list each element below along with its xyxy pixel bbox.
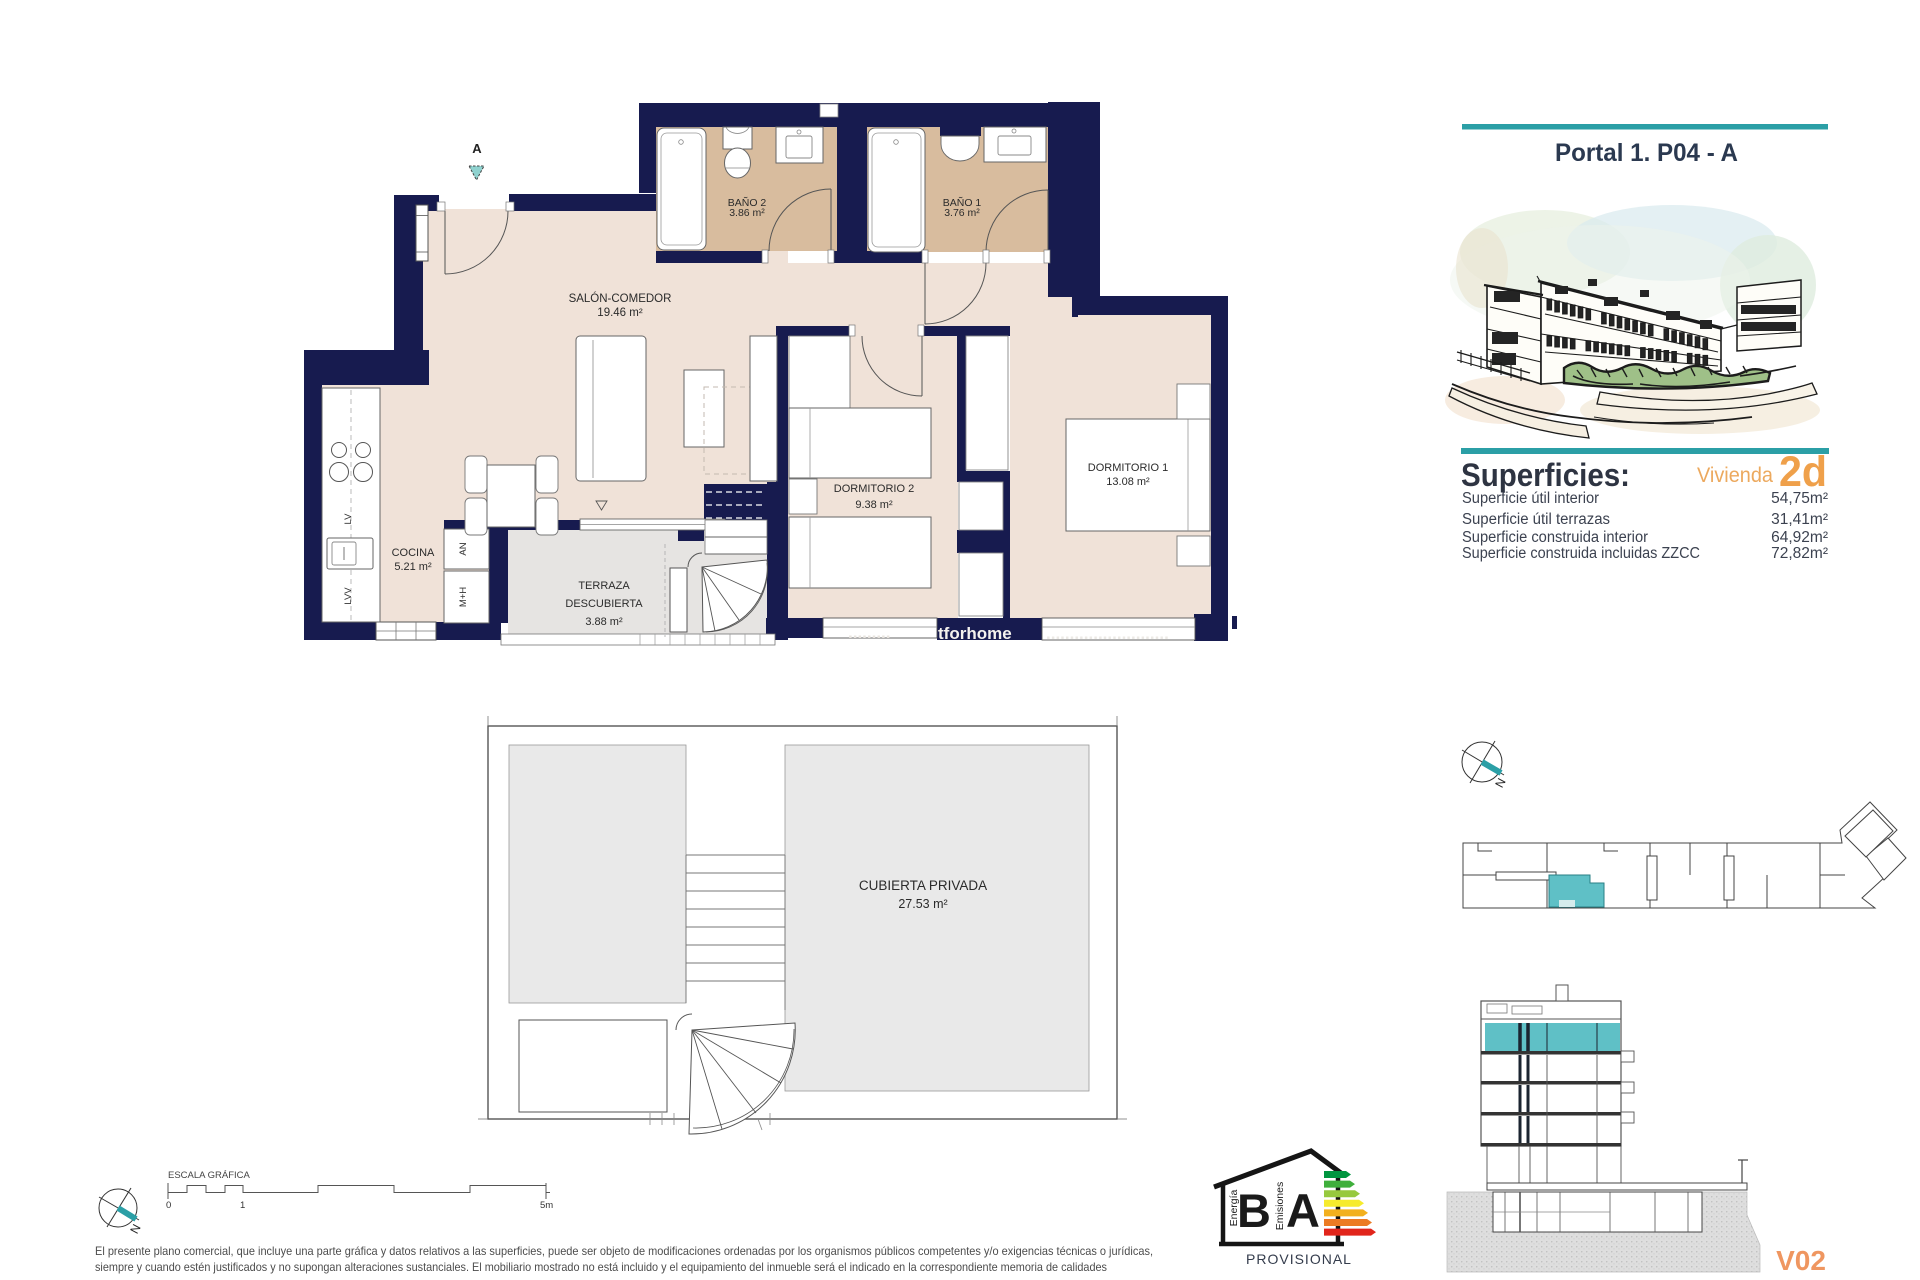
svg-text:31,41m²: 31,41m² [1771,511,1828,528]
svg-text:PROVISIONAL: PROVISIONAL [1246,1251,1352,1267]
svg-text:3.76 m²: 3.76 m² [944,207,980,219]
svg-text:Superficie útil interior: Superficie útil interior [1462,490,1599,507]
svg-text:3.86 m²: 3.86 m² [729,207,765,219]
svg-text:Superficie construida interior: Superficie construida interior [1462,529,1648,546]
svg-text:LV: LV [343,513,354,525]
svg-text:El presente plano comercial, q: El presente plano comercial, que incluye… [95,1245,1153,1258]
svg-text:54,75m²: 54,75m² [1771,490,1828,507]
svg-text:.........: ......... [848,623,891,642]
svg-text:5m: 5m [540,1200,553,1211]
svg-text:SALÓN-COMEDOR: SALÓN-COMEDOR [569,292,672,305]
svg-text:13.08 m²: 13.08 m² [1106,476,1150,488]
svg-text:64,92m²: 64,92m² [1771,529,1828,546]
svg-text:Portal 1. P04 - A: Portal 1. P04 - A [1555,139,1738,167]
svg-text:V02: V02 [1776,1245,1826,1276]
svg-text:1: 1 [240,1200,245,1211]
svg-text:9.38 m²: 9.38 m² [855,499,893,511]
svg-text:B: B [1237,1184,1271,1237]
svg-text:2d: 2d [1779,448,1827,496]
svg-text:LVV: LVV [343,587,354,605]
svg-text:tforhome: tforhome [938,624,1012,643]
svg-text:Vivienda: Vivienda [1697,464,1773,487]
svg-text:M+H: M+H [458,587,469,607]
svg-text:5.21 m²: 5.21 m² [394,561,432,573]
svg-text:27.53 m²: 27.53 m² [898,897,947,911]
svg-text:TERRAZA: TERRAZA [578,580,630,592]
svg-text:DORMITORIO 1: DORMITORIO 1 [1088,462,1168,474]
svg-text:Superficie construida incluida: Superficie construida incluidas ZZCC [1462,545,1700,562]
svg-text:A: A [1286,1184,1320,1237]
svg-text:..........................: .......................... [1046,624,1169,643]
svg-text:Energía: Energía [1228,1189,1240,1226]
svg-text:Emisiones: Emisiones [1274,1182,1286,1230]
svg-text:AN: AN [458,542,469,555]
svg-text:3.88 m²: 3.88 m² [585,616,623,628]
svg-text:Superficie útil terrazas: Superficie útil terrazas [1462,511,1610,528]
svg-text:DESCUBIERTA: DESCUBIERTA [565,598,643,610]
svg-text:DORMITORIO 2: DORMITORIO 2 [834,483,914,495]
svg-text:0: 0 [166,1200,171,1211]
svg-text:Superficies:: Superficies: [1461,457,1630,493]
svg-text:ESCALA GRÁFICA: ESCALA GRÁFICA [168,1170,250,1181]
svg-text:A: A [472,141,482,156]
svg-text:19.46 m²: 19.46 m² [597,307,643,319]
svg-text:COCINA: COCINA [392,547,435,559]
svg-text:siempre y cuando estén justifi: siempre y cuando estén justificados y no… [95,1261,1107,1274]
svg-text:72,82m²: 72,82m² [1771,545,1828,562]
svg-text:CUBIERTA PRIVADA: CUBIERTA PRIVADA [859,878,987,893]
